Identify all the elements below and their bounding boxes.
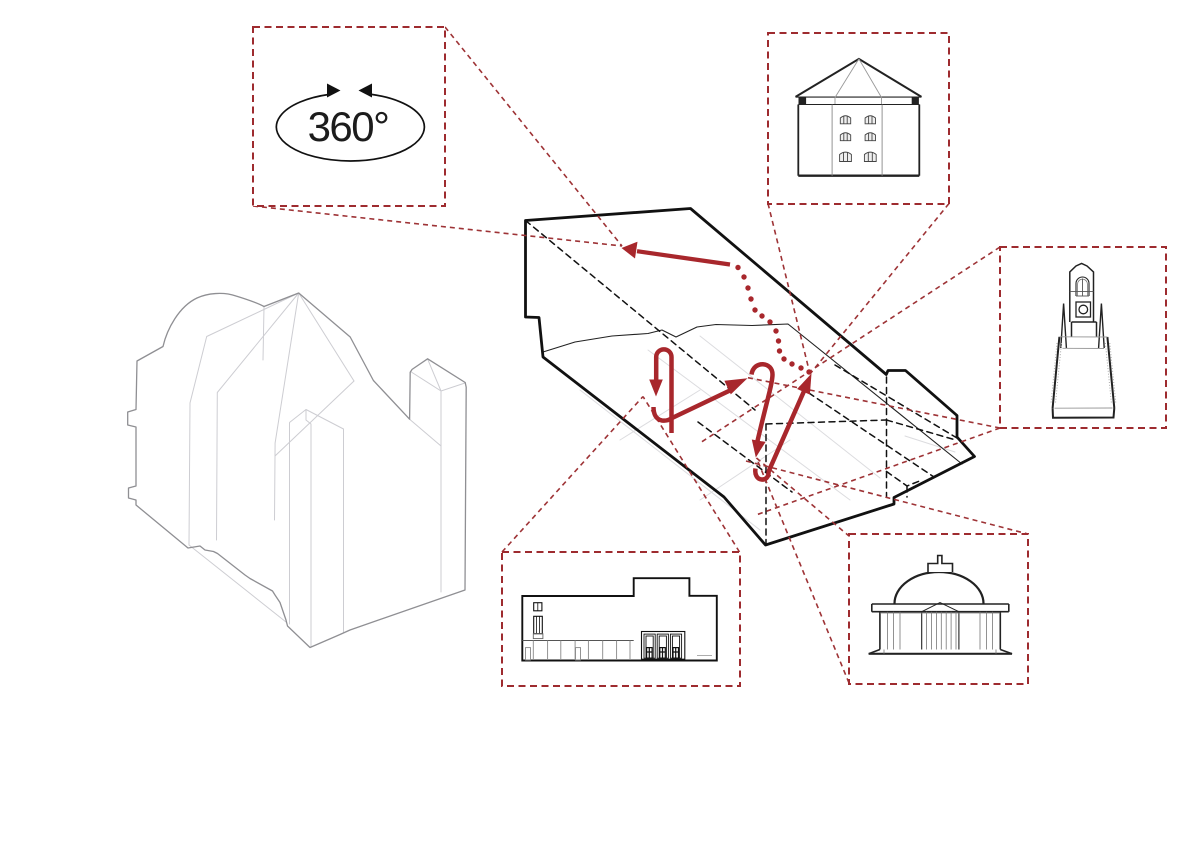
svg-text:360°: 360° (308, 103, 389, 150)
